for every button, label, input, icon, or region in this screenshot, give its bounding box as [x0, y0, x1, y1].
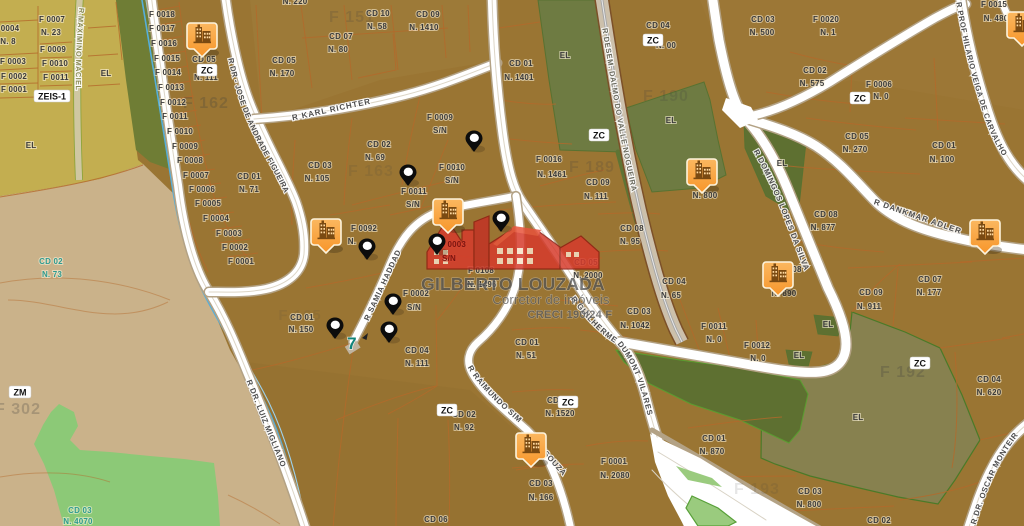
svg-text:N. 69: N. 69 — [365, 153, 385, 162]
svg-text:CD 02: CD 02 — [367, 140, 391, 149]
svg-text:Corretor de imóveis: Corretor de imóveis — [492, 292, 610, 307]
svg-text:F 0009: F 0009 — [40, 45, 66, 54]
svg-text:ZEIS-1: ZEIS-1 — [38, 92, 66, 102]
svg-text:N. 0: N. 0 — [873, 92, 889, 101]
svg-text:F 0011: F 0011 — [162, 112, 188, 121]
svg-text:CD 10: CD 10 — [366, 9, 390, 18]
svg-text:N. 92: N. 92 — [454, 423, 474, 432]
svg-text:N. 220: N. 220 — [283, 0, 308, 6]
svg-text:0004: 0004 — [1, 24, 20, 33]
svg-text:N. 58: N. 58 — [367, 22, 387, 31]
svg-text:N. 8: N. 8 — [0, 37, 16, 46]
svg-text:CD 01: CD 01 — [702, 434, 726, 443]
svg-text:CD 03: CD 03 — [798, 487, 822, 496]
svg-text:F 0009: F 0009 — [172, 142, 198, 151]
svg-text:N. 1520: N. 1520 — [545, 409, 575, 418]
svg-text:CD 04: CD 04 — [662, 277, 686, 286]
svg-text:N. 100: N. 100 — [930, 155, 955, 164]
svg-text:N. 0: N. 0 — [750, 354, 766, 363]
svg-text:N. 71: N. 71 — [239, 185, 259, 194]
svg-text:N. 620: N. 620 — [977, 388, 1002, 397]
svg-text:N. 800: N. 800 — [797, 500, 822, 509]
svg-text:EL: EL — [823, 320, 834, 329]
svg-text:CD 02: CD 02 — [867, 516, 891, 525]
svg-text:F 302: F 302 — [0, 401, 41, 418]
svg-text:CD 08: CD 08 — [620, 224, 644, 233]
svg-text:N. 500: N. 500 — [750, 28, 775, 37]
svg-text:N. 1401: N. 1401 — [504, 73, 534, 82]
svg-text:CD 01: CD 01 — [237, 172, 261, 181]
svg-text:N. 877: N. 877 — [811, 223, 836, 232]
svg-text:S/N: S/N — [445, 176, 459, 185]
svg-text:N. 95: N. 95 — [620, 237, 640, 246]
svg-text:N. 870: N. 870 — [700, 447, 725, 456]
svg-text:S/N: S/N — [442, 254, 456, 263]
svg-text:F 0020: F 0020 — [813, 15, 839, 24]
svg-text:CD 04: CD 04 — [405, 346, 429, 355]
svg-text:ZC: ZC — [562, 398, 574, 408]
svg-text:CD 02: CD 02 — [39, 257, 63, 266]
svg-text:N. 575: N. 575 — [800, 79, 825, 88]
svg-text:N. 4070: N. 4070 — [63, 517, 93, 526]
svg-text:N. 177: N. 177 — [917, 288, 942, 297]
svg-text:CD 04: CD 04 — [977, 375, 1001, 384]
svg-text:CD 01: CD 01 — [290, 313, 314, 322]
svg-text:CD 03: CD 03 — [751, 15, 775, 24]
svg-text:F 0092: F 0092 — [351, 224, 377, 233]
svg-text:F 193: F 193 — [734, 481, 780, 498]
svg-text:CRECI 190/24 F: CRECI 190/24 F — [528, 309, 613, 321]
svg-text:N. 111: N. 111 — [584, 192, 608, 201]
svg-text:F 0015: F 0015 — [154, 54, 180, 63]
svg-text:CD 03: CD 03 — [627, 307, 651, 316]
svg-text:N. 111: N. 111 — [405, 359, 429, 368]
svg-text:F 0011: F 0011 — [701, 322, 727, 331]
svg-text:S/N: S/N — [407, 303, 421, 312]
svg-text:EL: EL — [560, 51, 571, 60]
svg-text:F 0001: F 0001 — [228, 257, 254, 266]
svg-text:CD 09: CD 09 — [859, 288, 883, 297]
svg-text:F 0011: F 0011 — [401, 187, 427, 196]
svg-text:F 0012: F 0012 — [160, 98, 186, 107]
svg-text:CD 06: CD 06 — [424, 515, 448, 524]
svg-text:N. 1410: N. 1410 — [409, 23, 439, 32]
svg-text:F 0006: F 0006 — [866, 80, 892, 89]
svg-text:F 0015: F 0015 — [981, 0, 1007, 9]
svg-text:N. 73: N. 73 — [42, 270, 62, 279]
svg-text:ZC: ZC — [647, 36, 659, 46]
svg-text:F 0016: F 0016 — [151, 39, 177, 48]
svg-text:N. 80: N. 80 — [328, 45, 348, 54]
svg-text:CD 07: CD 07 — [918, 275, 942, 284]
svg-text:S/N: S/N — [406, 200, 420, 209]
svg-text:F 0002: F 0002 — [1, 72, 27, 81]
svg-text:CD: CD — [547, 396, 559, 405]
svg-text:CD 05: CD 05 — [272, 56, 296, 65]
svg-text:CD 09: CD 09 — [586, 178, 610, 187]
svg-text:F 0006: F 0006 — [189, 185, 215, 194]
svg-text:F 0007: F 0007 — [183, 171, 209, 180]
svg-text:CD 01: CD 01 — [509, 59, 533, 68]
svg-text:N.: N. — [348, 237, 356, 246]
svg-text:CD 01: CD 01 — [932, 141, 956, 150]
svg-text:EL: EL — [853, 413, 864, 422]
svg-text:N. 911: N. 911 — [857, 302, 882, 311]
svg-text:CD 04: CD 04 — [646, 21, 670, 30]
svg-text:CD 09: CD 09 — [416, 10, 440, 19]
svg-text:N. 0: N. 0 — [706, 335, 722, 344]
svg-text:EL: EL — [794, 351, 805, 360]
svg-text:F 0008: F 0008 — [177, 156, 203, 165]
svg-text:EL: EL — [777, 159, 788, 168]
svg-text:CD 03: CD 03 — [529, 479, 553, 488]
svg-text:CD 01: CD 01 — [515, 338, 539, 347]
svg-text:N. 480: N. 480 — [984, 14, 1009, 23]
svg-text:F 162: F 162 — [183, 95, 229, 112]
svg-text:EL: EL — [666, 116, 677, 125]
svg-text:F 0018: F 0018 — [149, 10, 175, 19]
svg-text:F 0005: F 0005 — [195, 199, 221, 208]
svg-text:CD 05: CD 05 — [845, 132, 869, 141]
svg-text:N. 51: N. 51 — [516, 351, 536, 360]
svg-text:EL: EL — [26, 141, 37, 150]
svg-text:F 0003: F 0003 — [216, 229, 242, 238]
svg-text:F 0017: F 0017 — [149, 24, 175, 33]
svg-text:F 189: F 189 — [569, 159, 615, 176]
svg-text:F 0001: F 0001 — [1, 85, 27, 94]
svg-text:ZC: ZC — [914, 359, 926, 369]
svg-text:N. 65: N. 65 — [661, 291, 681, 300]
svg-text:N. 170: N. 170 — [270, 69, 295, 78]
svg-text:F 0004: F 0004 — [203, 214, 229, 223]
svg-text:N. 166: N. 166 — [529, 493, 554, 502]
svg-text:CD 02: CD 02 — [803, 66, 827, 75]
svg-text:N. 1461: N. 1461 — [537, 170, 567, 179]
svg-text:CD 03: CD 03 — [308, 161, 332, 170]
svg-text:F 163: F 163 — [348, 163, 394, 180]
svg-text:F 0014: F 0014 — [155, 68, 181, 77]
svg-text:GILBERTO LOUZADA: GILBERTO LOUZADA — [421, 274, 605, 294]
svg-text:F 0002: F 0002 — [222, 243, 248, 252]
svg-text:7: 7 — [347, 334, 357, 353]
svg-text:ZM: ZM — [14, 388, 27, 398]
svg-text:ZC: ZC — [593, 131, 605, 141]
svg-text:CD 07: CD 07 — [329, 32, 353, 41]
svg-text:F 0016: F 0016 — [536, 155, 562, 164]
svg-text:N. 23: N. 23 — [41, 28, 61, 37]
svg-text:F 0001: F 0001 — [601, 457, 627, 466]
svg-text:F 0010: F 0010 — [42, 59, 68, 68]
svg-text:CD 03: CD 03 — [68, 506, 92, 515]
svg-text:EL: EL — [101, 69, 112, 78]
svg-text:N. 1042: N. 1042 — [620, 321, 650, 330]
svg-text:N. 1: N. 1 — [820, 28, 836, 37]
svg-text:F 190: F 190 — [643, 88, 689, 105]
svg-text:F 0013: F 0013 — [158, 83, 184, 92]
svg-text:CD 08: CD 08 — [814, 210, 838, 219]
svg-text:N. 105: N. 105 — [305, 174, 330, 183]
svg-text:ZC: ZC — [441, 406, 453, 416]
svg-text:F 0010: F 0010 — [439, 163, 465, 172]
svg-text:S/N: S/N — [433, 126, 447, 135]
svg-text:N. 270: N. 270 — [843, 145, 868, 154]
svg-text:F 0009: F 0009 — [427, 113, 453, 122]
svg-text:ZC: ZC — [201, 66, 213, 76]
svg-text:F 0011: F 0011 — [43, 73, 69, 82]
svg-text:ZC: ZC — [854, 94, 866, 104]
svg-text:F 0003: F 0003 — [0, 57, 26, 66]
svg-text:N. 2080: N. 2080 — [600, 471, 630, 480]
svg-text:F 0010: F 0010 — [167, 127, 193, 136]
svg-text:N. 150: N. 150 — [289, 325, 314, 334]
svg-text:F 0012: F 0012 — [744, 341, 770, 350]
svg-text:F 0007: F 0007 — [39, 15, 65, 24]
